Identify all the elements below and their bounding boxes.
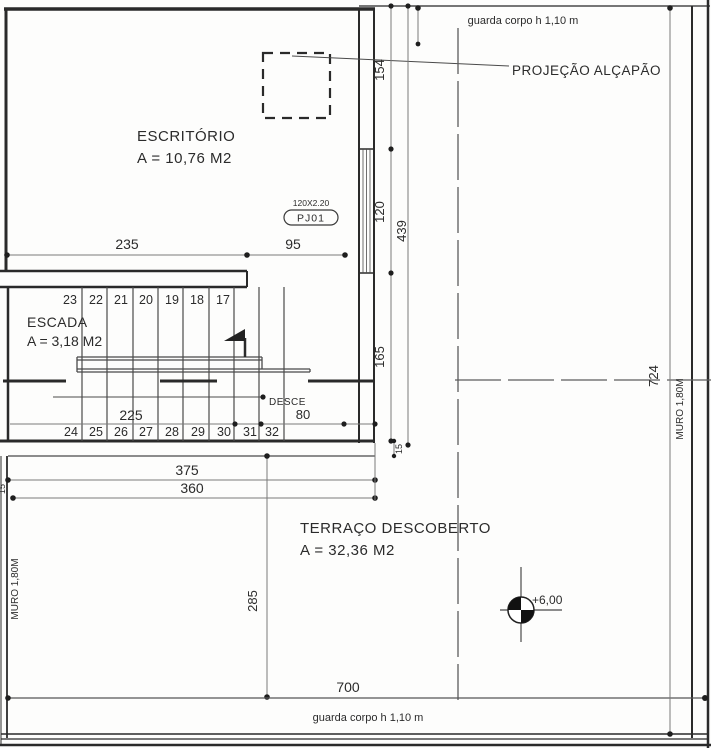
step-28: 28 <box>165 425 179 439</box>
dim-439: 439 <box>394 220 409 242</box>
dim-235: 235 <box>115 236 139 252</box>
terraco-room-name: TERRAÇO DESCOBERTO <box>300 520 491 537</box>
dim-120: 120 <box>372 201 387 223</box>
stair-handrail <box>77 338 310 372</box>
step-22: 22 <box>89 293 103 307</box>
window-tag-label: PJ01 <box>297 213 325 225</box>
dim-95: 95 <box>285 236 301 252</box>
step-20: 20 <box>139 293 153 307</box>
window-size-label: 120X2.20 <box>293 198 330 208</box>
dim-15-left: 15 <box>0 484 7 494</box>
dim-154: 154 <box>372 59 387 81</box>
floor-plan: guarda corpo h 1,10 m PROJEÇÃO ALÇAPÃO E… <box>0 0 711 748</box>
escada-room-area: A = 3,18 M2 <box>27 333 102 349</box>
step-24: 24 <box>64 425 78 439</box>
dim-165: 165 <box>372 346 387 368</box>
dimension-lines <box>4 3 708 736</box>
step-30: 30 <box>217 425 231 439</box>
dim-15-right: 15 <box>394 444 404 454</box>
step-21: 21 <box>114 293 128 307</box>
guard-rail-top-label: guarda corpo h 1,10 m <box>468 15 579 27</box>
dim-225: 225 <box>119 407 143 423</box>
step-26: 26 <box>114 425 128 439</box>
dim-375: 375 <box>175 462 199 478</box>
stair-treads <box>82 287 284 441</box>
escada-room-name: ESCADA <box>27 314 88 330</box>
step-numbers-upper: 23 22 21 20 19 18 17 <box>63 293 230 307</box>
guard-rail-bottom-label: guarda corpo h 1,10 m <box>313 712 424 724</box>
muro-left-label: MURO 1,80M <box>10 558 21 619</box>
step-17: 17 <box>216 293 230 307</box>
escritorio-room-area: A = 10,76 M2 <box>137 150 232 167</box>
step-31: 31 <box>243 425 257 439</box>
dim-700: 700 <box>336 679 360 695</box>
step-29: 29 <box>191 425 205 439</box>
escritorio-room-name: ESCRITÓRIO <box>137 128 235 145</box>
step-32: 32 <box>265 425 279 439</box>
step-27: 27 <box>139 425 153 439</box>
dim-285: 285 <box>245 590 260 612</box>
step-19: 19 <box>165 293 179 307</box>
floor-plan-svg: guarda corpo h 1,10 m PROJEÇÃO ALÇAPÃO E… <box>0 0 711 748</box>
muro-right-label: MURO 1,80M <box>675 378 686 439</box>
alcapao-projection-label: PROJEÇÃO ALÇAPÃO <box>512 63 661 78</box>
step-25: 25 <box>89 425 103 439</box>
dim-724: 724 <box>646 365 661 387</box>
dim-360: 360 <box>180 480 204 496</box>
step-18: 18 <box>190 293 204 307</box>
dim-80: 80 <box>296 407 310 422</box>
step-numbers-lower: 24 25 26 27 28 29 30 31 32 <box>64 425 279 439</box>
terraco-room-area: A = 32,36 M2 <box>300 542 395 559</box>
step-23: 23 <box>63 293 77 307</box>
centerlines <box>455 28 711 700</box>
level-value-label: +6,00 <box>532 593 563 607</box>
